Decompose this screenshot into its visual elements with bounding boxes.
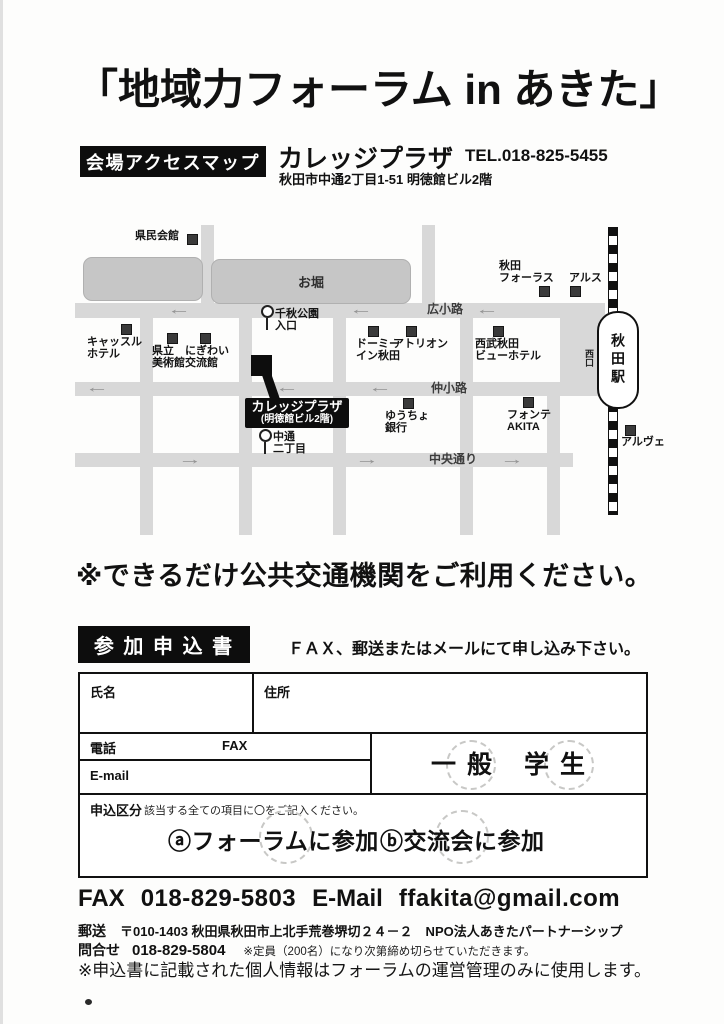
scan-speck-artifact [85, 999, 92, 1005]
place-label-seibu-view-hotel: 西武秋田 ビューホテル [475, 338, 541, 362]
traffic-signal-icon [259, 429, 272, 454]
flyer-page: 「地域力フォーラム in あきた」 会場アクセスマップ カレッジプラザ TEL.… [0, 0, 724, 1024]
email-label: E-Mail [312, 885, 383, 913]
street-label-nakakoji: 仲小路 [431, 381, 467, 395]
form-instruction: ＦＡＸ、郵送またはメールにて申し込み下さい。 [288, 635, 640, 659]
arrow-right-icon: → [500, 452, 524, 468]
privacy-note: ※申込書に記載された個人情報はフォーラムの運営管理のみに使用します。 [78, 956, 651, 981]
place-label-yucho-bank: ゆうちょ 銀行 [385, 410, 429, 434]
fax-email-row: FAX 018-829-5803 E-Mail ffakita@gmail.co… [78, 885, 620, 913]
entry-option-b: ⓑ交流会に参加 [380, 822, 545, 856]
category-student: 学 生 [524, 745, 587, 781]
street-vertical [547, 382, 560, 535]
station-name-label: 秋田駅 [608, 333, 628, 387]
entry-option-a: ⓐフォーラムに参加 [168, 822, 379, 856]
arrow-left-icon: ← [85, 380, 109, 396]
entry-type-note: 該当する全ての項目に〇をご記入ください。 [144, 802, 364, 818]
moat-label: お堀 [212, 260, 410, 303]
venue-address: 秋田市中通2丁目1-51 明徳館ビル2階 [279, 169, 492, 188]
field-label-address: 住所 [264, 682, 290, 701]
map-marker [200, 333, 211, 344]
fax-number: 018-829-5803 [141, 885, 296, 913]
place-label-castle-hotel: キャッスル ホテル [87, 336, 142, 360]
place-label-atorion: アトリオン [393, 338, 448, 350]
table-line [80, 759, 370, 761]
arrow-left-icon: ← [349, 302, 373, 318]
place-label-akita-forus: 秋田 フォーラス [499, 260, 554, 284]
moat-block-ohori: お堀 [211, 259, 411, 304]
access-map-section-label: 会場アクセスマップ [80, 146, 266, 177]
moat-block [83, 257, 203, 301]
street-vertical [422, 225, 435, 303]
table-line [252, 674, 254, 732]
field-label-phone: 電話 [90, 738, 116, 757]
place-label-kenmin-kaikan: 県民会館 [135, 230, 179, 242]
traffic-signal-icon [261, 305, 274, 330]
venue-callout-floor: (明徳館ビル2階) [245, 414, 349, 425]
field-label-name: 氏名 [90, 682, 116, 701]
postal-row: 郵送 〒010-1403 秋田県秋田市上北手荒巻堺切２４－２ NPO法人あきたパ… [78, 921, 622, 941]
arrow-right-icon: → [355, 452, 379, 468]
table-line [80, 793, 646, 795]
application-form-section-label: 参 加 申 込 書 [78, 626, 250, 663]
entry-type-label: 申込区分 [90, 800, 142, 819]
arrow-left-icon: ← [275, 380, 299, 396]
application-form-table: 氏名 住所 電話 FAX E-mail 一 般 学 生 申込区分 該当する全ての… [78, 672, 648, 878]
map-marker [403, 398, 414, 409]
map-marker [187, 234, 198, 245]
place-label-nakadori-2chome: 中通 二丁目 [273, 431, 306, 455]
scan-edge-artifact [0, 0, 3, 1024]
venue-callout-name: カレッジプラザ [245, 400, 349, 414]
post-label: 郵送 [78, 921, 106, 941]
place-label-senshu-park-entrance: 千秋公園 入口 [275, 308, 319, 332]
map-marker [406, 326, 417, 337]
map-marker [493, 326, 504, 337]
category-general: 一 般 [431, 745, 494, 781]
email-address: ffakita@gmail.com [399, 885, 620, 913]
place-label-nigiwai-koryukan: にぎわい 交流館 [185, 345, 229, 369]
arrow-left-icon: ← [167, 302, 191, 318]
street-vertical [460, 303, 473, 535]
page-title: 「地域力フォーラム in あきた」 [76, 56, 676, 117]
place-label-alve: アルヴェ [621, 436, 665, 448]
venue-tel: TEL.018-825-5455 [465, 146, 608, 166]
railway-line [608, 403, 618, 515]
place-label-fonte-akita: フォンテ AKITA [507, 409, 551, 433]
map-marker [368, 326, 379, 337]
railway-line [608, 227, 618, 313]
field-label-fax: FAX [222, 738, 247, 753]
street-label-chuodori: 中央通り [429, 452, 477, 466]
map-marker [167, 333, 178, 344]
transport-notice: ※できるだけ公共交通機関をご利用ください。 [76, 554, 696, 593]
map-marker [625, 425, 636, 436]
akita-station: 秋田駅 [597, 311, 639, 409]
arrow-left-icon: ← [475, 302, 499, 318]
arrow-right-icon: → [178, 452, 202, 468]
venue-square-marker [251, 355, 272, 376]
map-marker [121, 324, 132, 335]
category-cell: 一 般 学 生 [372, 734, 646, 792]
arrow-left-icon: ← [368, 380, 392, 396]
venue-callout: カレッジプラザ (明徳館ビル2階) [245, 398, 349, 428]
field-label-email: E-mail [90, 768, 129, 783]
map-marker [523, 397, 534, 408]
post-address: 〒010-1403 秋田県秋田市上北手荒巻堺切２４－２ NPO法人あきたパートナ… [120, 921, 622, 940]
street-label-hirokoji: 広小路 [427, 302, 463, 316]
fax-label: FAX [78, 885, 125, 913]
place-label-alus: アルス [569, 272, 602, 284]
access-map: お堀 ← ← 広小路 ← ← ← ← 仲小路 → → 中央通り → 秋田駅 西口… [75, 205, 724, 535]
map-marker [539, 286, 550, 297]
west-exit-label: 西口 [583, 349, 596, 367]
map-marker [570, 286, 581, 297]
place-label-kenritsu-bijutsukan: 県立 美術館 [152, 345, 185, 369]
